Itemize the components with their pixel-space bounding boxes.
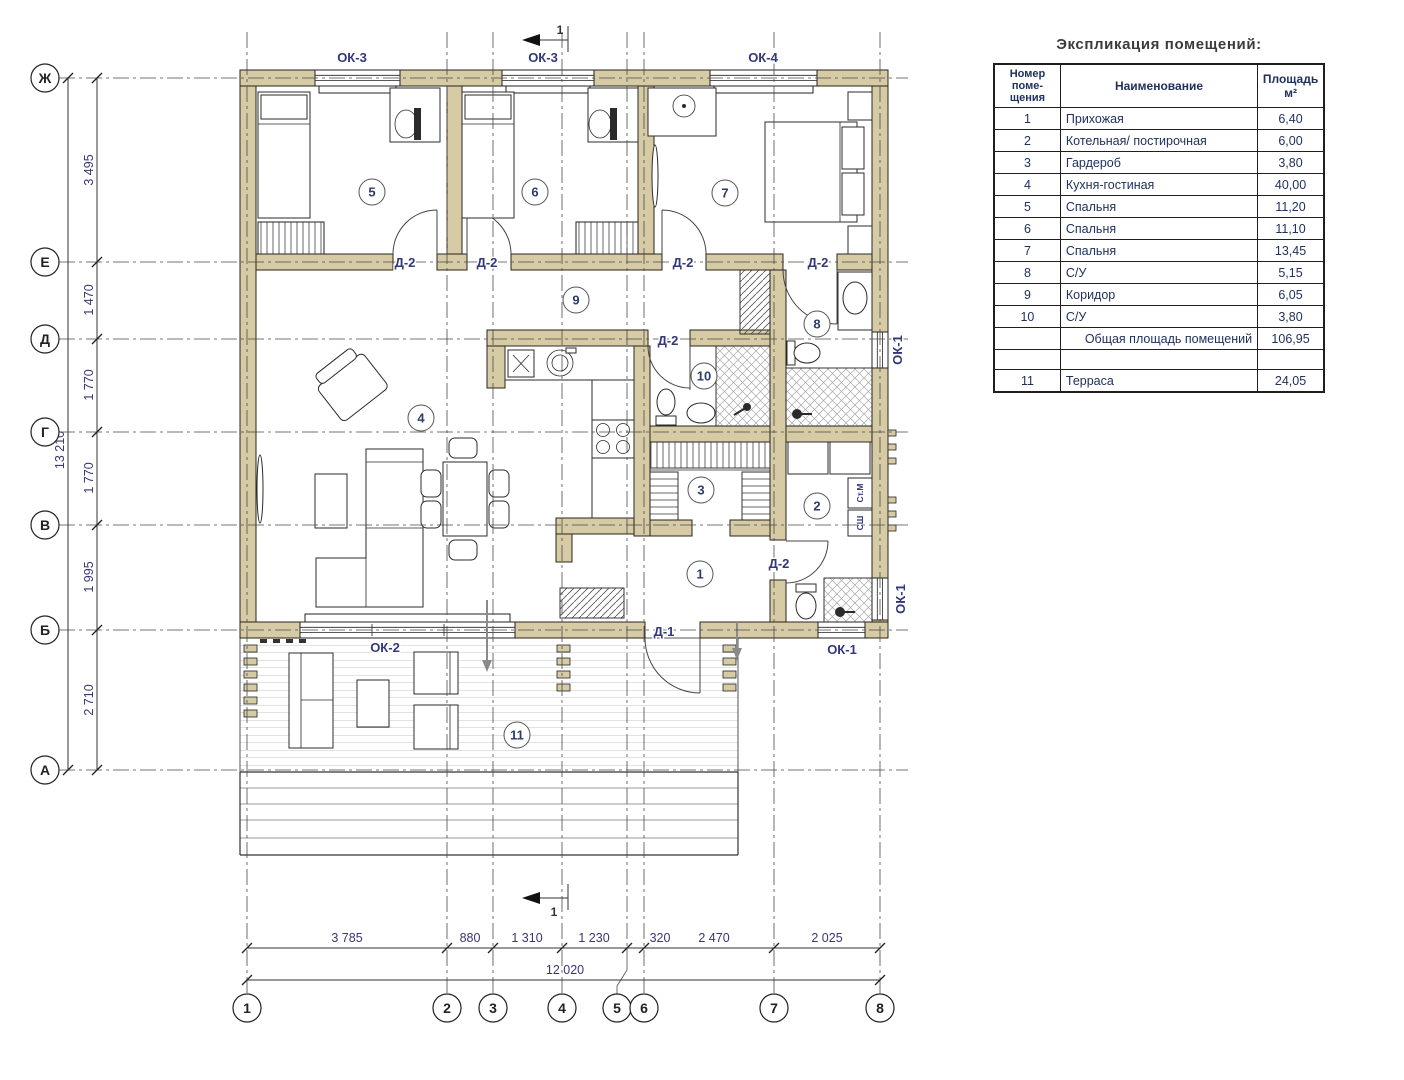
stove	[592, 420, 634, 458]
room-area-cell: 11,20	[1258, 196, 1324, 218]
room-number-cell: 9	[994, 284, 1060, 306]
tv	[257, 455, 263, 523]
wardrobe	[576, 222, 638, 254]
window-ok2	[300, 614, 515, 638]
room-number-cell: 1	[994, 108, 1060, 130]
table-header-row: Номер поме- щения Наименование Площадь м…	[994, 64, 1324, 108]
room-area-cell: 6,40	[1258, 108, 1324, 130]
dim-bottom-3: 1 310	[511, 931, 542, 945]
explication-table: Номер поме- щения Наименование Площадь м…	[993, 63, 1325, 393]
room-number-cell: 6	[994, 218, 1060, 240]
room-name-cell: Прихожая	[1060, 108, 1257, 130]
dim-left-4: 1 770	[82, 462, 96, 493]
room-name-cell: Терраса	[1060, 370, 1257, 393]
terrace-coffee-table	[357, 680, 389, 727]
door-label-d1: Д-1	[654, 624, 675, 639]
table-row: 1 Прихожая 6,40	[994, 108, 1324, 130]
dim-left-3: 1 770	[82, 369, 96, 400]
room-name-cell: Котельная/ постирочная	[1060, 130, 1257, 152]
window-label-ok1: ОК-1	[827, 642, 857, 657]
table-row: 3 Гардероб 3,80	[994, 152, 1324, 174]
table-row: 6 Спальня 11,10	[994, 218, 1324, 240]
room-area-cell: 11,10	[1258, 218, 1324, 240]
header-room-area: Площадь м²	[1258, 64, 1324, 108]
room-number-cell: 5	[994, 196, 1060, 218]
room-number-cell: 7	[994, 240, 1060, 262]
axis-col-label: 3	[489, 1000, 497, 1016]
dim-bottom-2: 880	[460, 931, 481, 945]
door-label-d2: Д-2	[477, 255, 498, 270]
header-room-number: Номер поме- щения	[994, 64, 1060, 108]
dim-left-2: 1 470	[82, 284, 96, 315]
section-mark-bottom: 1	[522, 884, 568, 919]
hall-bench	[560, 588, 624, 618]
room-number-cell: 4	[994, 174, 1060, 196]
dim-bottom-1: 3 785	[331, 931, 362, 945]
room-area-cell: 6,00	[1258, 130, 1324, 152]
room-number: 2	[813, 499, 820, 514]
dim-left-1: 3 495	[82, 154, 96, 185]
wall-hatch-marks	[888, 430, 896, 531]
bed	[258, 92, 310, 218]
header-room-name: Наименование	[1060, 64, 1257, 108]
nightstand	[848, 226, 872, 254]
room-number-cell: 11	[994, 370, 1060, 393]
room-name-cell: Спальня	[1060, 240, 1257, 262]
room-name-cell: Коридор	[1060, 284, 1257, 306]
axis-row-label: В	[40, 517, 50, 533]
door-label-d2: Д-2	[808, 255, 829, 270]
door-boiler-room	[786, 541, 828, 583]
room-number: 7	[721, 186, 728, 201]
axis-col-label: 1	[243, 1000, 251, 1016]
room-area-cell: 6,05	[1258, 284, 1324, 306]
table-row: 9 Коридор 6,05	[994, 284, 1324, 306]
room-number: 1	[696, 567, 703, 582]
room-area-cell: 13,45	[1258, 240, 1324, 262]
desk-chair	[390, 88, 440, 142]
room-area-cell: 40,00	[1258, 174, 1324, 196]
room-name-cell: С/У	[1060, 262, 1257, 284]
terrace-chair	[414, 652, 458, 694]
explication-title: Экспликация помещений:	[993, 36, 1325, 53]
axis-row-label: Е	[40, 254, 49, 270]
wc-bottom-fixtures	[796, 578, 872, 622]
axis-row-label: Г	[41, 424, 49, 440]
section-number: 1	[551, 905, 558, 919]
axis-row-label: А	[40, 762, 50, 778]
section-mark-top: 1	[522, 23, 568, 52]
empty-cell	[1060, 350, 1257, 370]
bed	[462, 92, 514, 218]
room-name-cell: Гардероб	[1060, 152, 1257, 174]
room-number: 3	[697, 483, 704, 498]
tv	[652, 145, 658, 207]
dim-left-5: 1 995	[82, 561, 96, 592]
section-number: 1	[557, 23, 564, 37]
total-area-cell: 106,95	[1258, 328, 1324, 350]
window-label-ok4: ОК-4	[748, 50, 778, 65]
axis-col-label: 6	[640, 1000, 648, 1016]
table-row: 5 Спальня 11,20	[994, 196, 1324, 218]
table-row: 10 С/У 3,80	[994, 306, 1324, 328]
room-number-cell	[994, 328, 1060, 350]
nightstand	[848, 92, 872, 120]
window-label-ok3: ОК-3	[337, 50, 367, 65]
dim-bottom-total: 12 020	[546, 963, 584, 977]
axis-col-label: 2	[443, 1000, 451, 1016]
corridor-closet	[740, 270, 770, 334]
row-axis-bubbles: Ж Е Д Г В Б А	[31, 64, 59, 784]
room-number: 11	[510, 728, 524, 743]
door-label-d2: Д-2	[658, 333, 679, 348]
room-name-cell: Спальня	[1060, 196, 1257, 218]
dim-left-6: 2 710	[82, 684, 96, 715]
window-label-ok1: ОК-1	[893, 584, 908, 614]
left-dimensions: 3 495 1 470 1 770 1 770 1 995 2 710 13 2…	[53, 73, 102, 775]
col-axis-bubbles: 1 2 3 4 5 6 7 8	[233, 994, 894, 1022]
wardrobe	[258, 222, 324, 254]
room-number: 10	[697, 369, 711, 384]
axis-col-label: 5	[613, 1000, 621, 1016]
table-row: 4 Кухня-гостиная 40,00	[994, 174, 1324, 196]
window-ok3-b	[502, 70, 594, 93]
bottom-dimensions: 3 785 880 1 310 1 230 320 2 470 2 025 12…	[242, 931, 885, 985]
desk-chair	[588, 88, 638, 142]
double-bed	[765, 122, 864, 222]
room-name-cell: Кухня-гостиная	[1060, 174, 1257, 196]
window-label-ok3: ОК-3	[528, 50, 558, 65]
room-number: 4	[417, 411, 425, 426]
terrace-chair	[414, 705, 458, 749]
axis-row-label: Ж	[38, 70, 52, 86]
door-label-d2: Д-2	[395, 255, 416, 270]
terrace-sofa	[289, 653, 333, 748]
room-number: 9	[572, 293, 579, 308]
room-number-cell: 8	[994, 262, 1060, 284]
empty-cell	[1258, 350, 1324, 370]
desk-lamp	[648, 88, 716, 136]
table-row: 7 Спальня 13,45	[994, 240, 1324, 262]
door-label-d2: Д-2	[673, 255, 694, 270]
empty-cell	[994, 350, 1060, 370]
dim-bottom-7: 2 025	[811, 931, 842, 945]
table-row: 2 Котельная/ постирочная 6,00	[994, 130, 1324, 152]
door-bedroom5	[393, 210, 437, 254]
floor-plan-sheet: Ст.М СШ	[0, 0, 1404, 1080]
dining-set	[421, 438, 509, 560]
room-area-cell: 3,80	[1258, 152, 1324, 174]
window-label-ok2: ОК-2	[370, 640, 400, 655]
room-number-cell: 10	[994, 306, 1060, 328]
door-label-d2: Д-2	[769, 556, 790, 571]
room-name-cell: С/У	[1060, 306, 1257, 328]
window-ok4	[710, 70, 817, 93]
room-number: 6	[531, 185, 538, 200]
table-terrace-row: 11 Терраса 24,05	[994, 370, 1324, 393]
room-number: 5	[368, 185, 375, 200]
table-total-row: Общая площадь помещений 106,95	[994, 328, 1324, 350]
axis-row-label: Д	[40, 331, 50, 347]
dim-bottom-6: 2 470	[698, 931, 729, 945]
room-number-cell: 3	[994, 152, 1060, 174]
coffee-table	[315, 474, 347, 528]
washer-label: Ст.М	[855, 484, 865, 503]
room-name-cell: Спальня	[1060, 218, 1257, 240]
wc8-fixtures	[786, 272, 872, 426]
room-area-cell: 5,15	[1258, 262, 1324, 284]
axis-col-label: 7	[770, 1000, 778, 1016]
room-area-cell: 24,05	[1258, 370, 1324, 393]
armchair	[310, 344, 390, 423]
room-area-cell: 3,80	[1258, 306, 1324, 328]
total-label-cell: Общая площадь помещений	[1060, 328, 1257, 350]
room-number: 8	[813, 317, 820, 332]
table-row: 8 С/У 5,15	[994, 262, 1324, 284]
table-empty-row	[994, 350, 1324, 370]
room-explication: Экспликация помещений: Номер поме- щения…	[993, 36, 1325, 393]
dim-bottom-4: 1 230	[578, 931, 609, 945]
door-bedroom7	[662, 210, 706, 254]
window-label-ok1: ОК-1	[890, 335, 905, 365]
door-wc10	[648, 346, 690, 390]
axis-row-label: Б	[40, 622, 50, 638]
axis-col-label: 4	[558, 1000, 566, 1016]
dryer-label: СШ	[855, 516, 865, 531]
room-number-cell: 2	[994, 130, 1060, 152]
window-ok3-a	[315, 70, 400, 93]
axis-col-label: 8	[876, 1000, 884, 1016]
dim-bottom-5: 320	[650, 931, 671, 945]
